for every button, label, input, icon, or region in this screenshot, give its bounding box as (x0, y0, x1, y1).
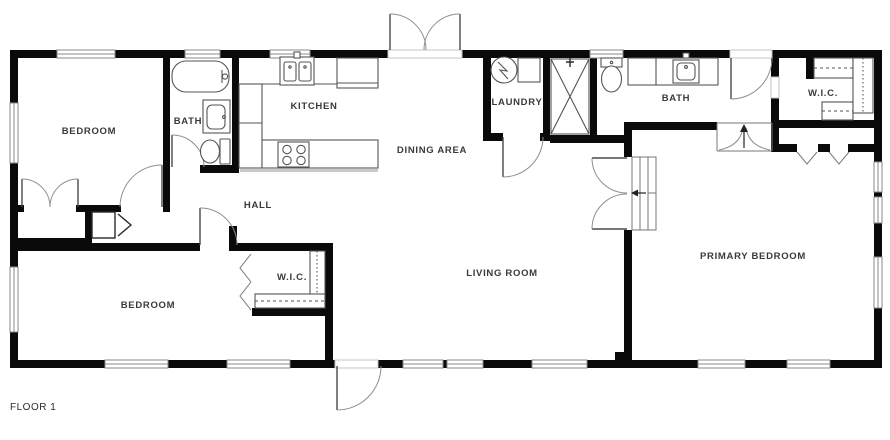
shower-stall-icon (551, 58, 589, 134)
kitchen-sink-icon (280, 52, 314, 85)
label-bath-left: BATH (174, 116, 202, 127)
water-heater-icon (92, 212, 115, 238)
room-labels: BEDROOM BATH KITCHEN DINING AREA LAUNDRY… (62, 88, 838, 311)
windows (10, 50, 882, 368)
floor-plan-page: BEDROOM BATH KITCHEN DINING AREA LAUNDRY… (0, 0, 890, 440)
label-living-room: LIVING ROOM (466, 268, 538, 279)
dryer-icon (518, 58, 540, 82)
bathtub-icon (172, 61, 229, 92)
exterior-walls (10, 50, 882, 368)
utility-closet-door-icon (118, 214, 131, 236)
laundry-door-icon (503, 137, 543, 177)
vanity-sink-icon-2 (628, 53, 718, 85)
label-primary-bedroom: PRIMARY BEDROOM (700, 251, 806, 262)
label-bedroom-bottom-left: BEDROOM (121, 300, 176, 311)
primary-closet-chevrons-icon (797, 152, 849, 164)
label-bedroom-top-left: BEDROOM (62, 126, 117, 137)
bifold-doors-icon (717, 123, 772, 151)
floor-label: FLOOR 1 (10, 402, 56, 413)
label-dining-area: DINING AREA (397, 145, 467, 156)
label-laundry: LAUNDRY (492, 97, 543, 108)
doors (22, 14, 849, 410)
fridge-icon (337, 58, 378, 88)
primary-double-doors-icon (592, 157, 656, 230)
interior-walls (18, 58, 874, 368)
label-wic-top-right: W.I.C. (808, 88, 838, 99)
vanity-sink-icon (203, 100, 230, 133)
washer-icon (491, 57, 517, 83)
rear-door-icon (731, 58, 772, 99)
label-kitchen: KITCHEN (290, 101, 337, 112)
wic-bottom-opening-chevrons-icon (240, 254, 251, 310)
label-hall: HALL (244, 200, 272, 211)
toilet-icon (201, 139, 231, 164)
french-doors-icon (390, 14, 460, 50)
stove-icon (278, 142, 309, 167)
label-bath-right: BATH (662, 93, 690, 104)
label-wic-bottom: W.I.C. (277, 272, 307, 283)
bath-left-door-icon (172, 135, 204, 167)
floor-plan: BEDROOM BATH KITCHEN DINING AREA LAUNDRY… (0, 0, 890, 440)
toilet-icon-2 (601, 58, 622, 92)
closet-double-doors-icon (22, 179, 78, 207)
front-door-icon (337, 366, 381, 410)
bedroom-tl-door-icon (120, 165, 162, 207)
